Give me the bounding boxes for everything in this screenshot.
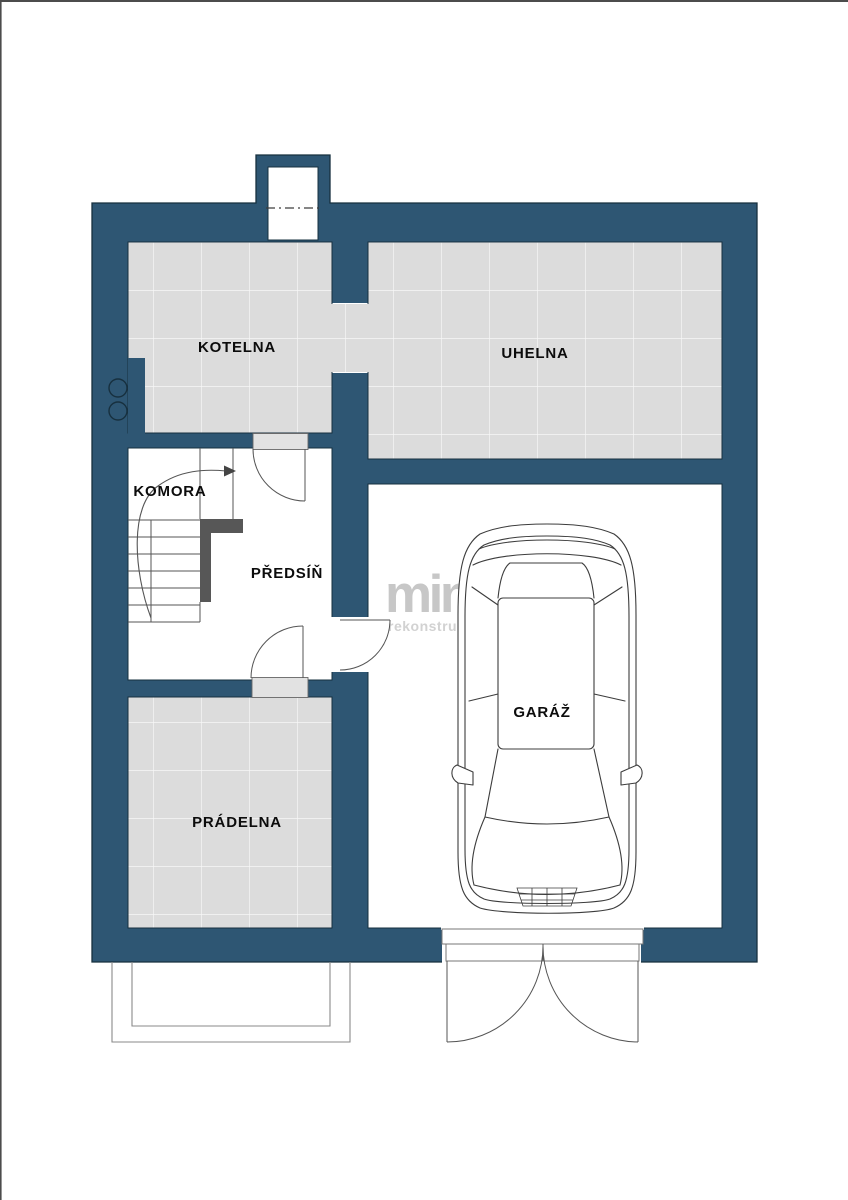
garage-door-sill-outer <box>442 929 643 944</box>
wall-right <box>722 203 757 962</box>
passage-kotelna-uhelna <box>331 304 369 372</box>
chimney-flue <box>268 167 318 240</box>
room-label-pradelna: PRÁDELNA <box>192 814 282 831</box>
room-label-predsin: PŘEDSÍŇ <box>251 564 323 582</box>
door-sill-kotelna <box>253 434 308 450</box>
floor-plan-page: mint rekonstrukce <box>0 0 848 1200</box>
floor-plan-drawing: mint rekonstrukce <box>0 0 848 1200</box>
wall-divider-lower <box>332 373 368 438</box>
car-roof <box>498 598 594 749</box>
exterior-terrace-outline <box>112 962 350 1042</box>
pipe-circle-2 <box>109 402 127 420</box>
stair-railing-side <box>200 533 211 602</box>
room-label-kotelna: KOTELNA <box>198 339 276 356</box>
garage-door <box>442 929 643 1042</box>
room-label-garaz: GARÁŽ <box>513 703 570 721</box>
page-border-left <box>0 0 2 1200</box>
wall-mid-lower <box>332 671 368 930</box>
stair-railing-top <box>200 519 243 533</box>
wall-pad-pipes <box>128 358 145 438</box>
room-label-uhelna: UHELNA <box>501 345 568 362</box>
wall-divider-upper <box>332 242 368 303</box>
room-pradelna-floor <box>128 697 332 928</box>
door-sill-pradelna <box>252 678 308 698</box>
wall-uhelna-bottom <box>332 459 757 484</box>
wall-left <box>92 203 128 962</box>
room-label-komora: KOMORA <box>133 483 206 500</box>
page-border-top <box>0 0 848 2</box>
wall-bottom-right <box>641 928 757 962</box>
wall-top <box>92 203 757 242</box>
room-kotelna-floor <box>128 242 332 433</box>
pipe-circle-1 <box>109 379 127 397</box>
wall-bottom-left <box>92 928 442 962</box>
doorway-predsin-garaz <box>331 617 369 672</box>
